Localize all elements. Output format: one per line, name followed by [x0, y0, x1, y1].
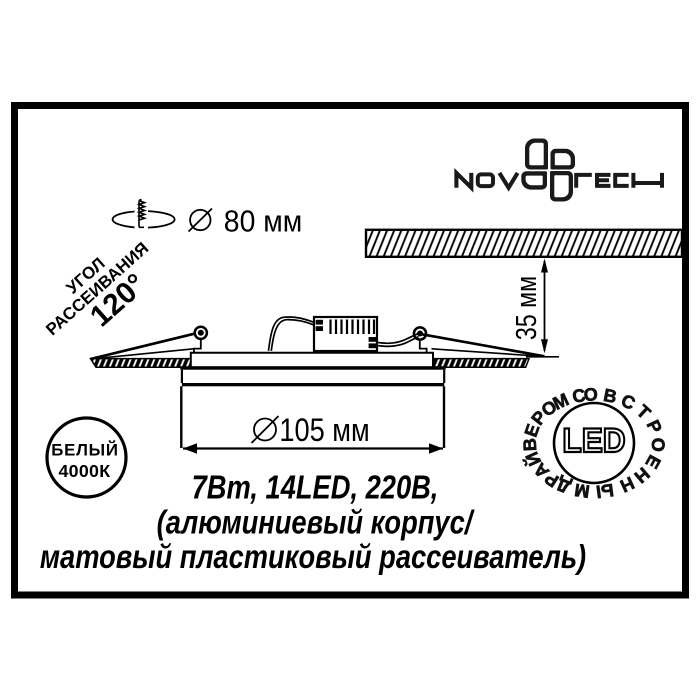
svg-text:4000К: 4000К — [58, 461, 110, 481]
svg-text:матовый пластиковый рассеивате: матовый пластиковый рассеиватель) — [40, 540, 586, 576]
svg-text:О: О — [648, 437, 669, 452]
svg-text:О: О — [583, 384, 598, 405]
svg-text:80 мм: 80 мм — [224, 205, 302, 239]
svg-text:(алюминиевый корпус/: (алюминиевый корпус/ — [157, 505, 476, 541]
svg-text:М: М — [573, 480, 591, 502]
svg-text:В: В — [520, 438, 541, 452]
svg-text:105 мм: 105 мм — [279, 413, 369, 449]
svg-text:БЕЛЫЙ: БЕЛЫЙ — [51, 441, 119, 460]
svg-text:35 мм: 35 мм — [509, 276, 542, 340]
svg-text:LED: LED — [562, 421, 625, 459]
svg-text:Ы: Ы — [595, 480, 615, 502]
svg-text:7Вт, 14LED, 220В,: 7Вт, 14LED, 220В, — [192, 470, 439, 506]
